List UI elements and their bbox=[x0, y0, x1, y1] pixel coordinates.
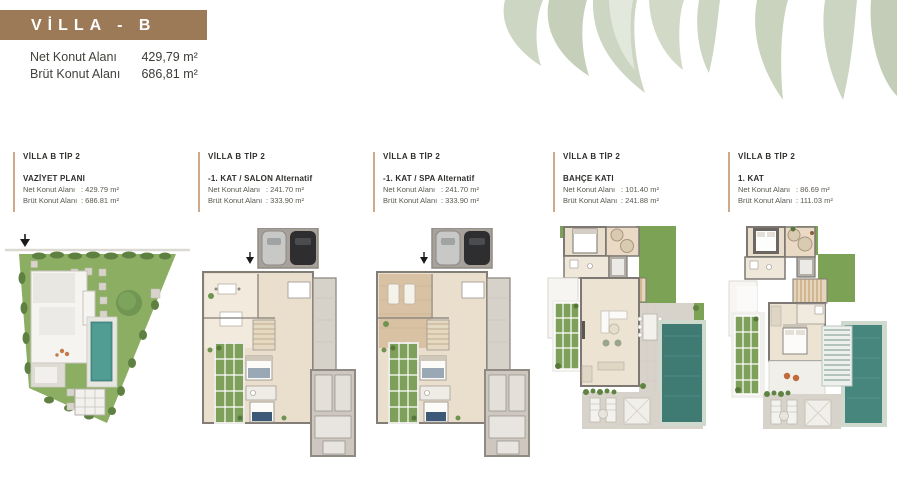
page-title: VİLLA - B bbox=[0, 10, 207, 40]
net-area-label: Net Konut Alanı bbox=[563, 185, 621, 196]
plan-type-title: VİLLA B TİP 2 bbox=[563, 152, 723, 161]
floor-plan-first-floor-graphic bbox=[727, 226, 897, 432]
plan-type-title: VİLLA B TİP 2 bbox=[208, 152, 368, 161]
plan-header-garden: VİLLA B TİP 2 BAHÇE KATI Net Konut Alanı… bbox=[553, 152, 723, 212]
tree-graphic bbox=[116, 290, 142, 316]
area-summary: Net Konut Alanı 429,79 m² Brüt Konut Ala… bbox=[30, 49, 198, 83]
brut-area-label: Brüt Konut Alanı bbox=[23, 196, 81, 207]
floor-plan-minus1-spa-graphic bbox=[372, 228, 534, 460]
floor-plan-minus1-salon-graphic bbox=[198, 228, 360, 460]
planter-graphic bbox=[215, 343, 244, 423]
plan-type-title: VİLLA B TİP 2 bbox=[23, 152, 183, 161]
brut-area-value: : 111.03 m² bbox=[796, 196, 833, 205]
villa-b-brochure-page: VİLLA - B Net Konut Alanı 429,79 m² Brüt… bbox=[0, 0, 897, 500]
pavilion-graphic bbox=[624, 398, 650, 424]
plan-header-minus1-salon: VİLLA B TİP 2 -1. KAT / SALON Alternatif… bbox=[198, 152, 368, 212]
plan-header-site: VİLLA B TİP 2 VAZİYET PLANI Net Konut Al… bbox=[13, 152, 183, 212]
outbuilding-graphic bbox=[75, 389, 105, 415]
brut-area-value: : 241.88 m² bbox=[621, 196, 659, 205]
net-area-label: Net Konut Alanı bbox=[738, 185, 796, 196]
orange-chair-icon bbox=[784, 373, 790, 379]
pool-graphic bbox=[87, 317, 117, 387]
net-area-value: : 86.69 m² bbox=[796, 185, 830, 194]
car-black-icon bbox=[464, 231, 490, 265]
car-black-icon bbox=[290, 231, 316, 265]
net-area-value: : 429.79 m² bbox=[81, 185, 119, 194]
net-area-value: : 101.40 m² bbox=[621, 185, 659, 194]
net-area-value: 429,79 m² bbox=[141, 49, 197, 66]
pool-graphic bbox=[658, 320, 706, 426]
brut-area-label: Brüt Konut Alanı bbox=[738, 196, 796, 207]
plan-floor-label: BAHÇE KATI bbox=[563, 174, 723, 183]
orange-chair-icon bbox=[793, 375, 799, 381]
brut-area-label: Brüt Konut Alanı bbox=[563, 196, 621, 207]
pavilion-graphic bbox=[805, 400, 831, 426]
car-silver-icon bbox=[262, 231, 286, 265]
planter-graphic bbox=[552, 300, 582, 372]
site-plan-graphic bbox=[5, 233, 190, 435]
north-arrow-icon bbox=[246, 252, 254, 264]
brut-area-value: 686,81 m² bbox=[141, 66, 197, 83]
planter-graphic bbox=[389, 343, 418, 423]
north-arrow-icon bbox=[420, 252, 428, 264]
car-silver-icon bbox=[436, 231, 460, 265]
plan-type-title: VİLLA B TİP 2 bbox=[738, 152, 897, 161]
brut-area-value: : 333.90 m² bbox=[441, 196, 479, 205]
north-arrow-icon bbox=[20, 234, 30, 247]
plan-floor-label: -1. KAT / SPA Alternatif bbox=[383, 174, 543, 183]
net-area-value: : 241.70 m² bbox=[266, 185, 304, 194]
leaf-decoration-graphic bbox=[497, 0, 897, 135]
brut-area-label: Brüt Konut Alanı bbox=[30, 66, 138, 83]
planter-graphic bbox=[731, 312, 765, 398]
brut-area-value: : 333.90 m² bbox=[266, 196, 304, 205]
pergola-graphic bbox=[822, 326, 852, 386]
net-area-label: Net Konut Alanı bbox=[30, 49, 138, 66]
plan-floor-label: -1. KAT / SALON Alternatif bbox=[208, 174, 368, 183]
brut-area-value: : 686.81 m² bbox=[81, 196, 119, 205]
net-area-value: : 241.70 m² bbox=[441, 185, 479, 194]
plan-type-title: VİLLA B TİP 2 bbox=[383, 152, 543, 161]
plan-floor-label: 1. KAT bbox=[738, 174, 897, 183]
floor-plan-garden-graphic bbox=[546, 226, 718, 432]
net-area-label: Net Konut Alanı bbox=[383, 185, 441, 196]
plan-header-minus1-spa: VİLLA B TİP 2 -1. KAT / SPA Alternatif N… bbox=[373, 152, 543, 212]
brut-area-label: Brüt Konut Alanı bbox=[383, 196, 441, 207]
net-area-label: Net Konut Alanı bbox=[208, 185, 266, 196]
plan-header-first-floor: VİLLA B TİP 2 1. KAT Net Konut Alanı: 86… bbox=[728, 152, 897, 212]
plan-floor-label: VAZİYET PLANI bbox=[23, 174, 183, 183]
net-area-label: Net Konut Alanı bbox=[23, 185, 81, 196]
brut-area-label: Brüt Konut Alanı bbox=[208, 196, 266, 207]
